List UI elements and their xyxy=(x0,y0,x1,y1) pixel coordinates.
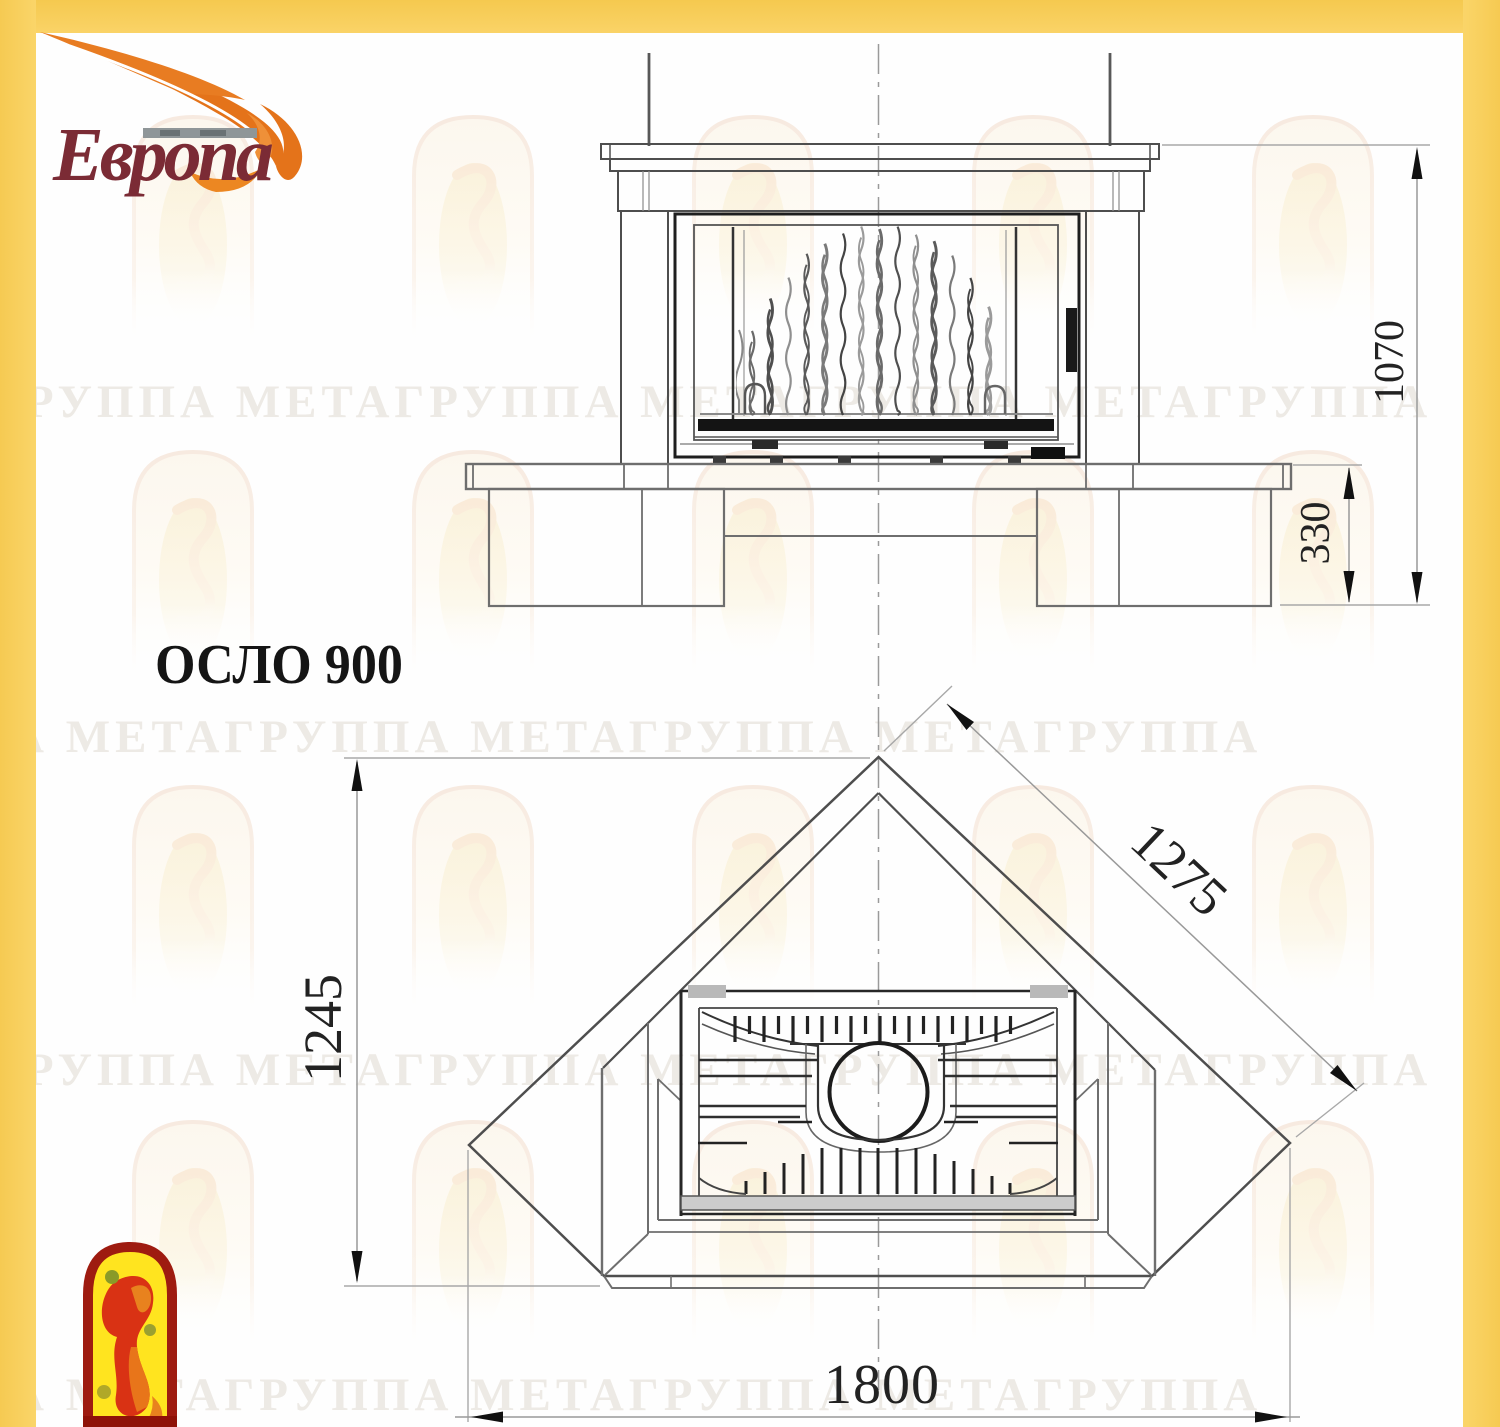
svg-text:1275: 1275 xyxy=(1119,810,1239,928)
svg-text:1800: 1800 xyxy=(824,1354,940,1416)
svg-text:1070: 1070 xyxy=(1367,320,1413,404)
svg-text:1245: 1245 xyxy=(293,974,353,1082)
svg-text:330: 330 xyxy=(1293,502,1339,565)
svg-text:Европа: Европа xyxy=(52,113,273,197)
